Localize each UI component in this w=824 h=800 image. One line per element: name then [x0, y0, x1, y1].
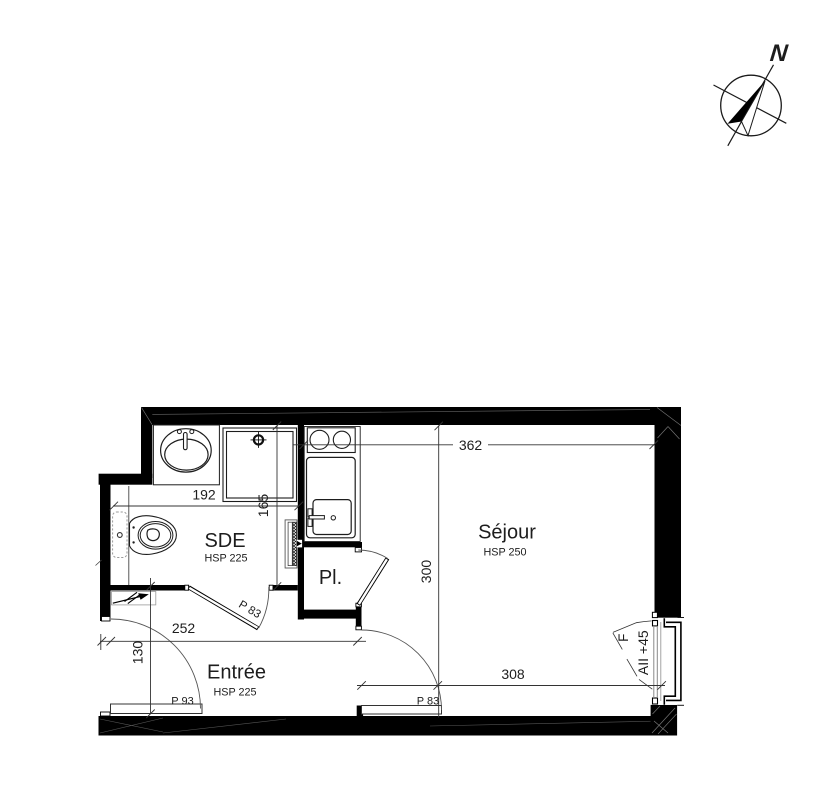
svg-text:300: 300 — [418, 560, 434, 584]
svg-text:HSP 225: HSP 225 — [213, 687, 256, 699]
svg-text:P 93: P 93 — [171, 696, 193, 708]
svg-text:165: 165 — [255, 494, 271, 518]
svg-text:N: N — [769, 40, 790, 67]
svg-text:AII +45: AII +45 — [635, 630, 651, 675]
svg-text:HSP 225: HSP 225 — [204, 553, 247, 565]
svg-text:192: 192 — [192, 487, 216, 503]
svg-text:308: 308 — [501, 666, 525, 682]
svg-text:Entrée: Entrée — [207, 662, 266, 684]
svg-text:F: F — [616, 634, 631, 642]
svg-text:Séjour: Séjour — [478, 522, 536, 544]
svg-text:Pl.: Pl. — [319, 567, 342, 589]
svg-text:130: 130 — [130, 641, 146, 665]
svg-text:SDE: SDE — [204, 530, 245, 552]
svg-text:362: 362 — [459, 437, 483, 453]
svg-text:P 83: P 83 — [417, 696, 439, 708]
svg-text:HSP 250: HSP 250 — [483, 547, 526, 559]
svg-text:252: 252 — [172, 620, 196, 636]
